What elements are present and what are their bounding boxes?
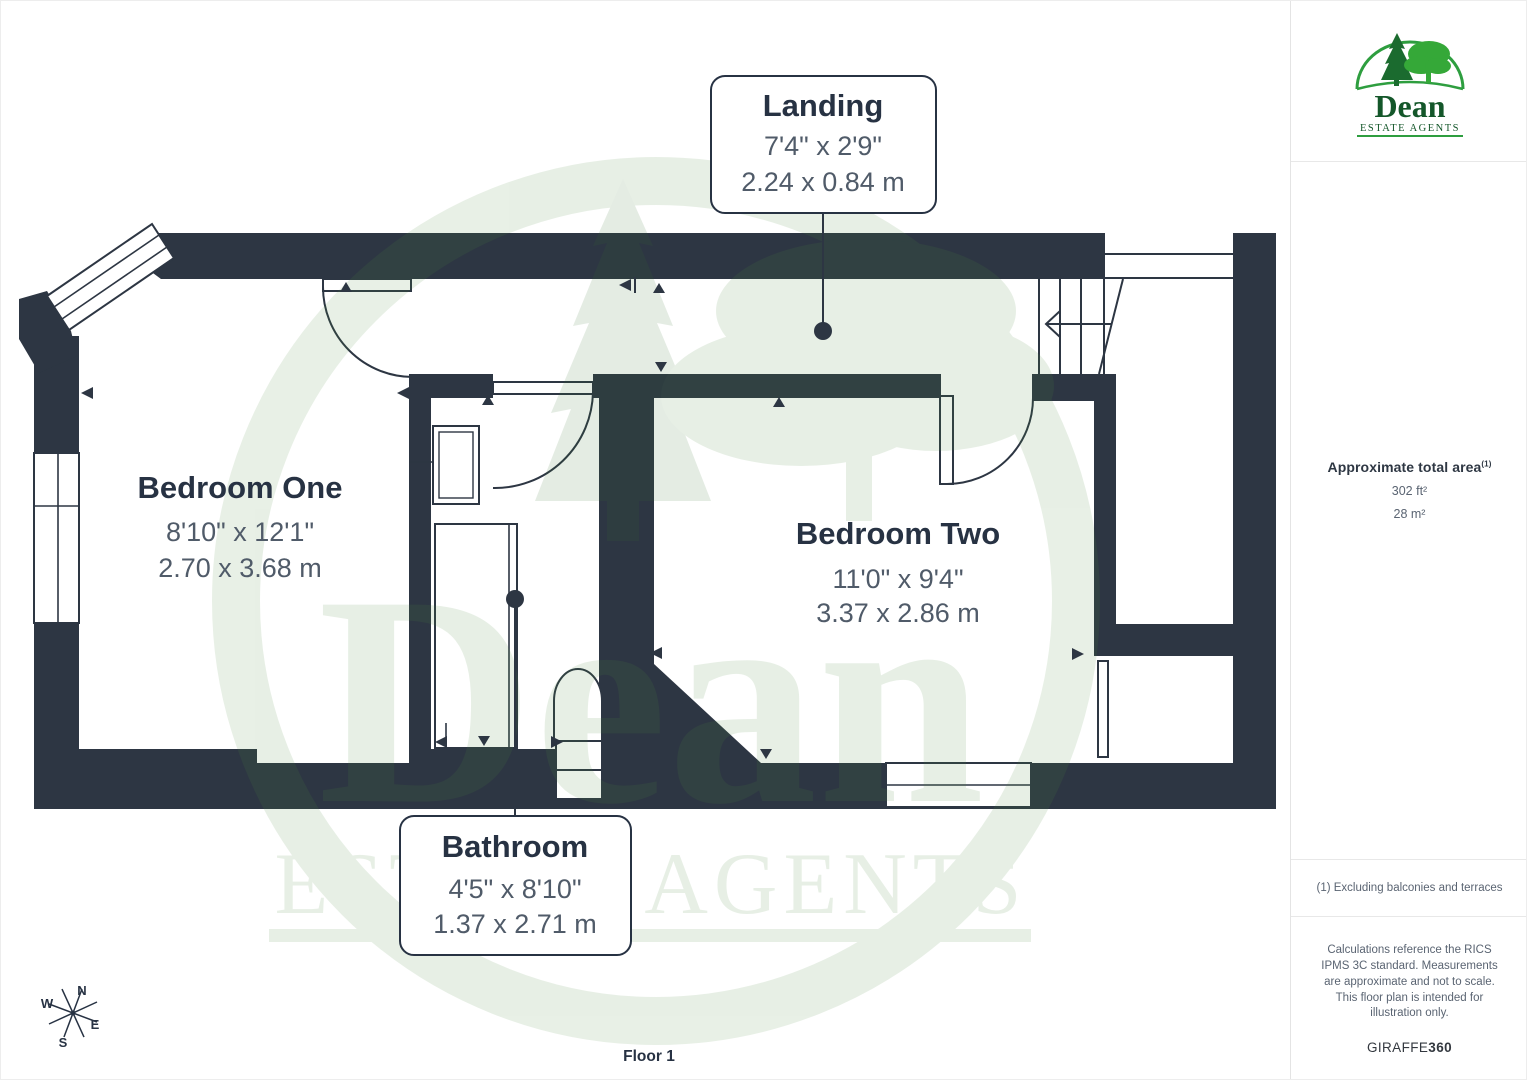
brand-line: GIRAFFE360 xyxy=(1291,1040,1527,1055)
footnote-text: (1) Excluding balconies and terraces xyxy=(1316,882,1502,894)
compass-north: N xyxy=(77,983,86,998)
landing-anchor-dot xyxy=(814,322,832,340)
disclaimer-text: Calculations reference the RICS IPMS 3C … xyxy=(1316,943,1504,1022)
bedroom-one-name: Bedroom One xyxy=(138,470,343,505)
bathroom-metric: 1.37 x 2.71 m xyxy=(433,909,597,939)
bedroom-one-imperial: 8'10" x 12'1" xyxy=(166,517,314,547)
floor-label: Floor 1 xyxy=(623,1048,675,1065)
area-metric: 28 m² xyxy=(1291,507,1527,521)
landing-name: Landing xyxy=(763,88,884,123)
compass-center xyxy=(71,1011,76,1016)
compass: N W E S xyxy=(41,983,100,1050)
bedroom-one-label: Bedroom One 8'10" x 12'1" 2.70 x 3.68 m xyxy=(138,470,343,583)
wall-right xyxy=(1233,233,1276,809)
area-imperial: 302 ft² xyxy=(1291,484,1527,498)
landing-imperial: 7'4" x 2'9" xyxy=(764,131,882,161)
watermark-subtitle: ESTATE AGENTS xyxy=(275,836,1028,933)
bedroom-two-name: Bedroom Two xyxy=(796,516,1000,551)
bay-window xyxy=(47,224,174,330)
stairs-direction-arrow xyxy=(1046,311,1111,337)
bedroom-two-imperial: 11'0" x 9'4" xyxy=(832,564,963,594)
wall-bathroom-top-left xyxy=(409,374,493,398)
wall-stairwell-bottom xyxy=(1094,624,1233,656)
brand-giraffe: GIRAFFE xyxy=(1367,1040,1428,1055)
bathroom-anchor-dot xyxy=(506,590,524,608)
logo-section: Dean ESTATE AGENTS xyxy=(1291,1,1527,162)
landing-metric: 2.24 x 0.84 m xyxy=(741,167,905,197)
area-title: Approximate total area(1) xyxy=(1291,459,1527,475)
footnote-block: (1) Excluding balconies and terraces xyxy=(1291,859,1527,917)
disclaimer-block: Calculations reference the RICS IPMS 3C … xyxy=(1291,917,1527,1055)
watermark-oak-tree xyxy=(661,239,1054,521)
compass-east: E xyxy=(91,1017,100,1032)
compass-south: S xyxy=(59,1035,68,1050)
bedroom-one-metric: 2.70 x 3.68 m xyxy=(158,553,322,583)
logo-subtitle: ESTATE AGENTS xyxy=(1359,123,1459,134)
bathroom-imperial: 4'5" x 8'10" xyxy=(448,874,581,904)
dean-logo: Dean ESTATE AGENTS xyxy=(1335,17,1485,145)
floor-plan-svg: Dean ESTATE AGENTS xyxy=(1,1,1290,1080)
area-block: Approximate total area(1) 302 ft² 28 m² xyxy=(1291,459,1527,521)
cupboard-door-leaf xyxy=(1098,661,1108,757)
sidebar: Dean ESTATE AGENTS Approximate total are… xyxy=(1290,1,1527,1080)
floorplan-page: Dean ESTATE AGENTS xyxy=(0,0,1527,1080)
compass-west: W xyxy=(41,996,54,1011)
landing-callout: Landing 7'4" x 2'9" 2.24 x 0.84 m xyxy=(711,76,936,213)
bathroom-name: Bathroom xyxy=(442,829,588,864)
bedroom-two-metric: 3.37 x 2.86 m xyxy=(816,598,980,628)
watermark-underline xyxy=(269,929,1031,942)
floor-plan-area: Dean ESTATE AGENTS xyxy=(1,1,1290,1080)
basin-inner xyxy=(439,432,473,498)
left-window xyxy=(34,453,79,623)
logo-name: Dean xyxy=(1374,88,1445,124)
brand-360: 360 xyxy=(1428,1040,1452,1055)
area-footnote-ref: (1) xyxy=(1481,459,1491,468)
logo-underline xyxy=(1357,135,1463,137)
bathroom-callout: Bathroom 4'5" x 8'10" 1.37 x 2.71 m xyxy=(400,816,631,955)
